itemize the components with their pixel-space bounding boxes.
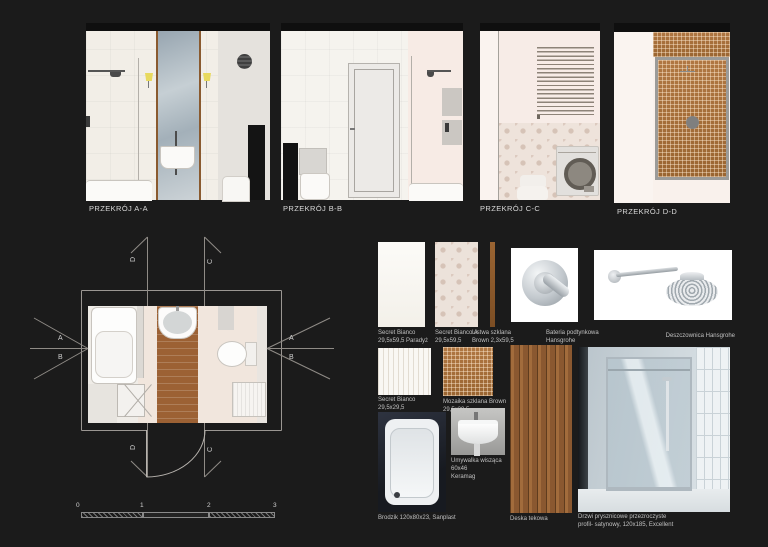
sample-tile-secret-bianco-small: [378, 348, 431, 395]
sample-name: Secret Bianco: [378, 397, 434, 405]
door-shower-column: [666, 379, 669, 451]
sample-name: Secret Bianco: [378, 330, 434, 338]
scale-bar: 0 1 2 3: [76, 502, 280, 522]
sample-name: Mozaika szklana Brown: [443, 399, 507, 407]
basin-trap: [474, 444, 480, 456]
scale-seg-2: [143, 512, 209, 518]
sample-label-11: Drzwi prysznicowe przezroczyste profil- …: [578, 514, 708, 530]
plan-mark-d-top: D: [130, 257, 137, 262]
plan-mark-c-bottom: C: [207, 447, 214, 452]
sample-label-5: Deszczownica Hansgrohe: [635, 333, 735, 341]
sample-name: Listwa szklana: [472, 330, 522, 338]
sample-label-4: Bateria podtynkowa Hansgrohe: [546, 330, 606, 346]
sample-name: Drzwi prysznicowe przezroczyste: [578, 514, 708, 522]
presentation-board: PRZEKRÓJ A-A PRZEKRÓJ B-B PRZEKRÓJ C-C: [0, 0, 768, 547]
scale-seg-3: [209, 512, 275, 518]
plan-mark-d-bottom: D: [130, 445, 137, 450]
sample-name: Deszczownica Hansgrohe: [635, 333, 735, 341]
sample-detail: profil- satynowy, 120x185, Excellent: [578, 522, 708, 530]
sample-washbasin: [451, 408, 505, 455]
sample-name: Brodzik 120x80x23, Sanplast: [378, 515, 468, 523]
sample-name: Bateria podtynkowa: [546, 330, 606, 338]
tray-drain-icon: [394, 492, 400, 498]
tray-inner: [390, 428, 434, 498]
basin-bowl: [458, 424, 498, 444]
scale-tick-2: 2: [207, 502, 211, 509]
sample-rain-shower: [594, 250, 732, 320]
sample-label-8: Brodzik 120x80x23, Sanplast: [378, 515, 468, 523]
sample-tile-secret-bianco: [378, 242, 425, 327]
sample-tile-secret-bianco-a: [435, 242, 478, 327]
scale-tick-1: 1: [140, 502, 144, 509]
scale-tick-3: 3: [273, 502, 277, 509]
sample-detail: Keramag: [451, 474, 513, 482]
door-photo-floor: [578, 489, 730, 512]
sample-name: Umywalka wisząca 60x46: [451, 458, 513, 474]
scale-tick-0: 0: [76, 502, 80, 509]
door-tray-edge: [606, 489, 692, 491]
plan-mark-b-right: B: [289, 354, 294, 361]
scale-seg-1: [81, 512, 143, 518]
sample-detail: 29,5x59,5 Paradyż: [378, 338, 434, 346]
shower-head-disc: [666, 278, 718, 306]
shower-head-dome: [680, 272, 704, 280]
door-swing: [147, 430, 206, 477]
door-glass-panel: [606, 357, 692, 489]
plan-mark-b-left: B: [58, 354, 63, 361]
sample-shower-door: [578, 347, 730, 512]
door-photo-window: [696, 347, 730, 512]
sample-label-3: Listwa szklana Brown 2,3x59,5: [472, 330, 522, 346]
sample-shower-tray: [378, 412, 446, 512]
sample-label-9: Umywalka wisząca 60x46 Keramag: [451, 458, 513, 481]
plan-mark-a-left: A: [58, 335, 63, 342]
sample-glass-listello: [490, 242, 495, 327]
sample-teak-board: [510, 345, 572, 513]
sample-label-1: Secret Bianco 29,5x59,5 Paradyż: [378, 330, 434, 346]
sample-glass-mosaic-brown: [443, 347, 493, 396]
sample-label-10: Deska tekowa: [510, 516, 580, 524]
door-top-rail: [608, 369, 690, 371]
plan-mark-c-top: C: [207, 259, 214, 264]
plan-mark-a-right: A: [289, 335, 294, 342]
door-photo-left-edge: [578, 347, 588, 512]
sample-concealed-mixer: [511, 248, 578, 322]
plan-outline: [82, 291, 282, 431]
door-hand-shower-icon: [662, 377, 672, 381]
shower-arm: [616, 267, 678, 277]
sample-label-6: Secret Bianco 29,5x29,5: [378, 397, 434, 413]
sample-name: Deska tekowa: [510, 516, 580, 524]
